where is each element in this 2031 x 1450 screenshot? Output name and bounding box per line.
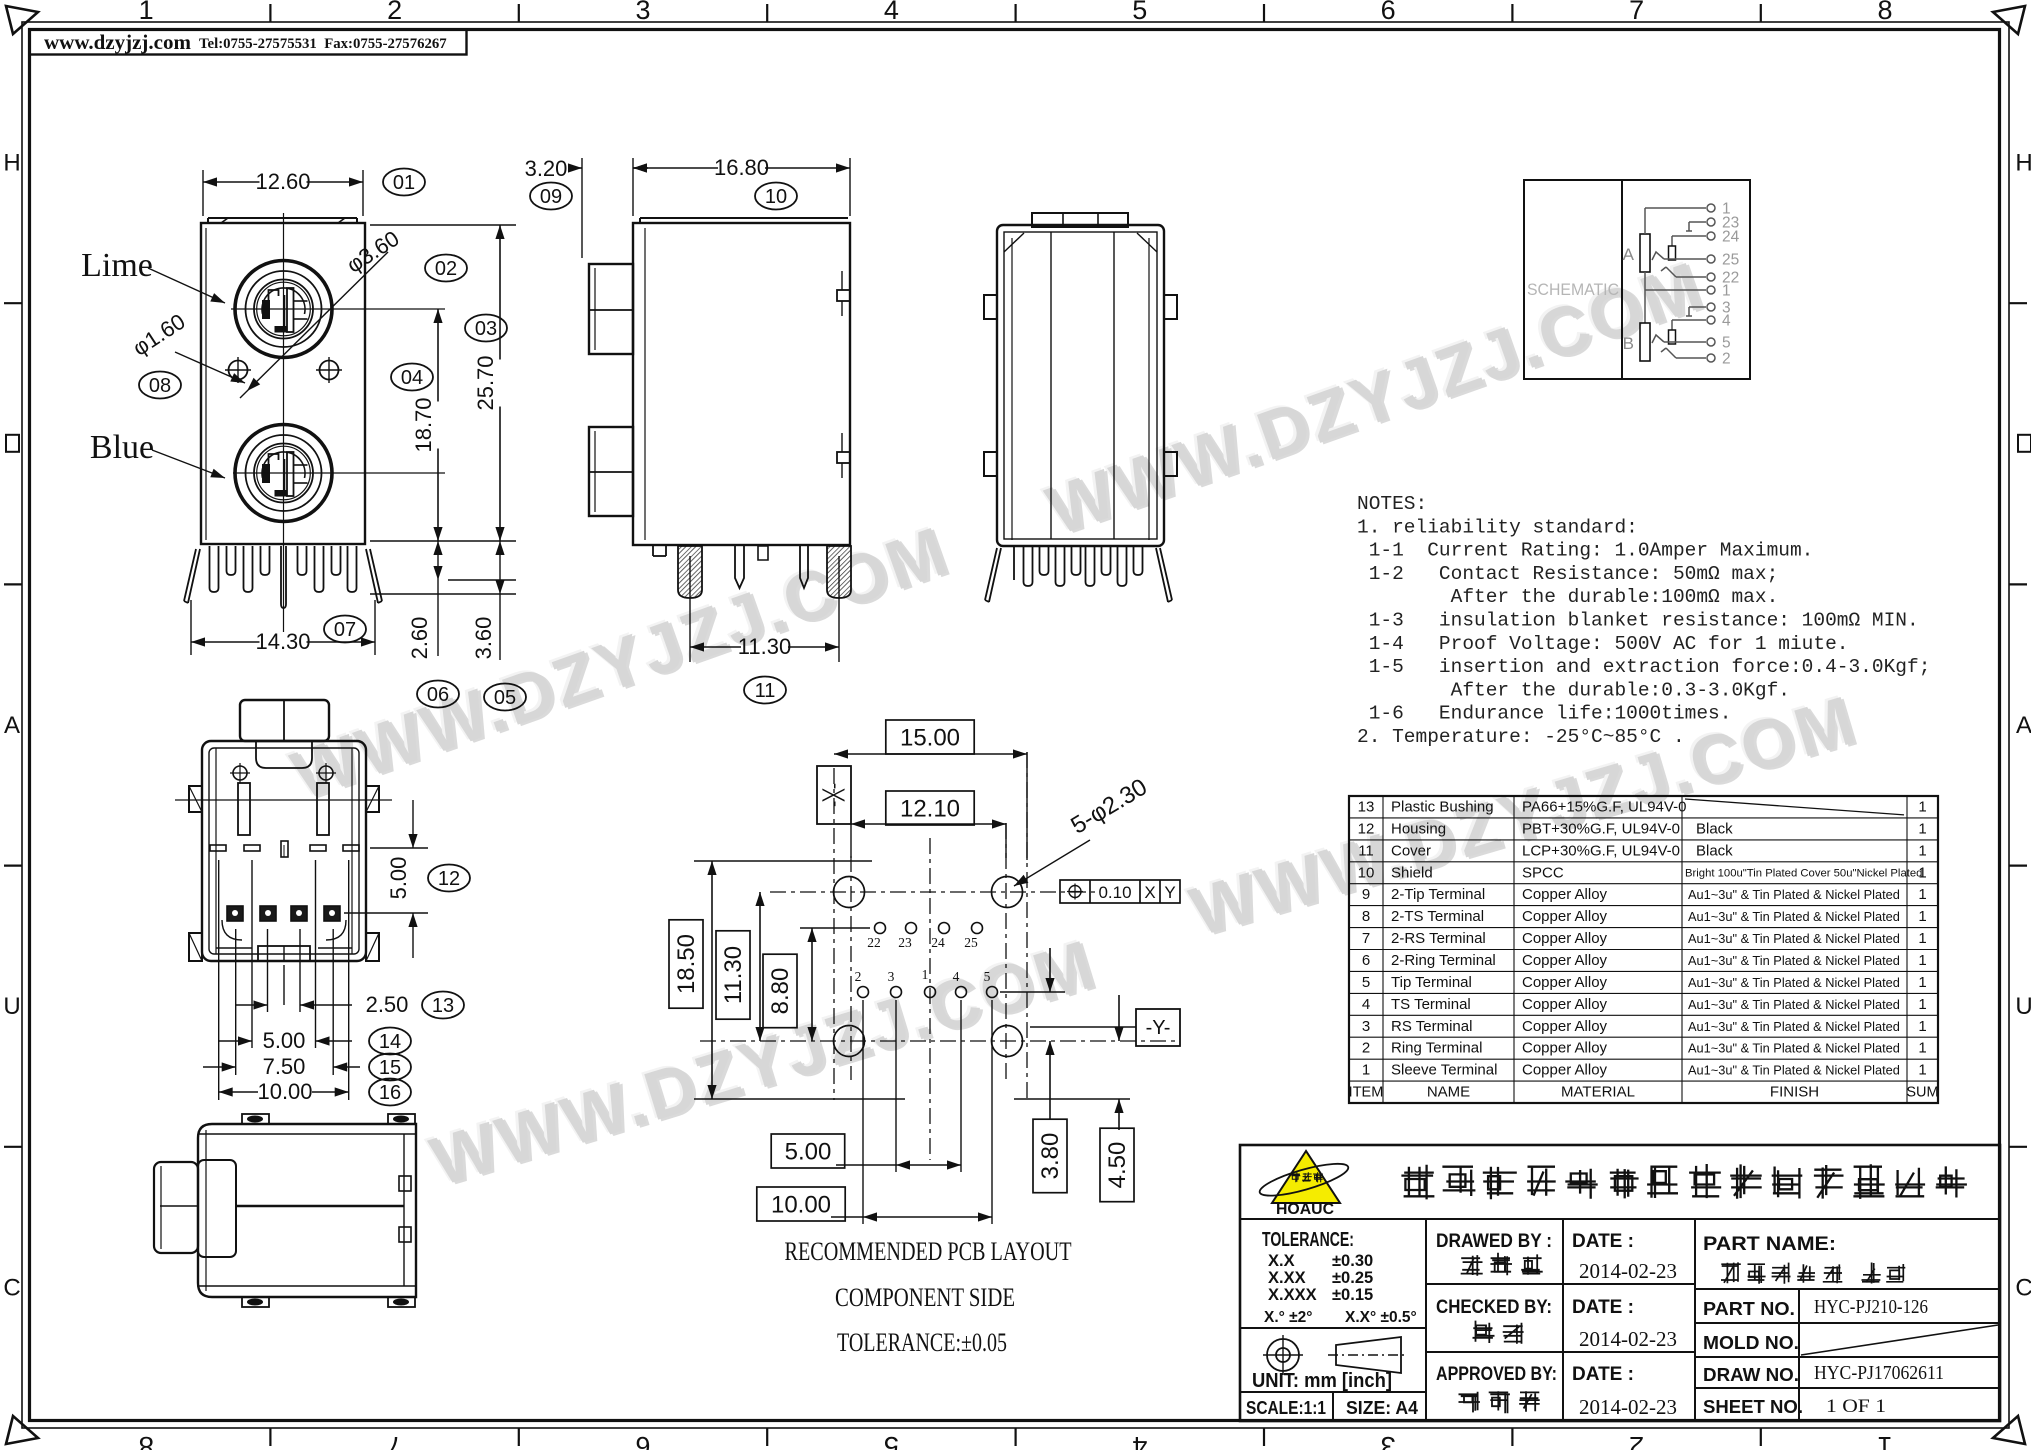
svg-text:Lime: Lime [81, 247, 153, 284]
svg-text:15: 15 [379, 1057, 401, 1079]
svg-text:25: 25 [964, 935, 978, 950]
svg-text:2-Ring Terminal: 2-Ring Terminal [1391, 952, 1496, 969]
svg-text:3: 3 [1381, 1431, 1396, 1450]
svg-text:5.00: 5.00 [263, 1028, 306, 1053]
svg-text:2: 2 [855, 969, 862, 984]
svg-text:Copper Alloy: Copper Alloy [1522, 952, 1608, 969]
svg-text:1-4 Proof Voltage: 500V AC f: 1-4 Proof Voltage: 500V AC for 1 miute. [1357, 633, 1848, 655]
svg-text:1 OF 1: 1 OF 1 [1826, 1396, 1886, 1417]
svg-text:5: 5 [1132, 0, 1147, 25]
svg-text:1: 1 [1918, 842, 1926, 859]
svg-text:2-RS Terminal: 2-RS Terminal [1391, 930, 1486, 947]
svg-text:1: 1 [1918, 799, 1926, 816]
svg-text:SCHEMATIC: SCHEMATIC [1527, 280, 1619, 299]
svg-text:C: C [2015, 1274, 2031, 1301]
svg-text:PA66+15%G.F, UL94V-0: PA66+15%G.F, UL94V-0 [1522, 799, 1686, 816]
svg-text:1: 1 [1722, 283, 1731, 300]
svg-text:12: 12 [1358, 820, 1375, 837]
svg-text:4: 4 [1362, 996, 1370, 1013]
svg-text:7: 7 [1629, 0, 1644, 25]
svg-text:10: 10 [765, 186, 787, 208]
svg-text:1: 1 [1918, 996, 1926, 1013]
svg-text:11: 11 [1358, 842, 1374, 859]
svg-text:DATE :: DATE : [1572, 1364, 1634, 1385]
svg-text:06: 06 [427, 684, 449, 706]
svg-text:1-6 Endurance life:1000times: 1-6 Endurance life:1000times. [1357, 703, 1731, 725]
svg-text:Housing: Housing [1391, 820, 1446, 837]
svg-text:3.60: 3.60 [471, 617, 496, 660]
svg-text:4: 4 [953, 969, 960, 984]
svg-text:Y: Y [1164, 883, 1175, 902]
svg-text:B: B [1623, 334, 1634, 353]
svg-text:Au1~3u" & Tin Plated & Nickel: Au1~3u" & Tin Plated & Nickel Plated [1688, 975, 1900, 990]
svg-text:C: C [3, 1274, 20, 1301]
svg-text:1: 1 [1918, 952, 1926, 969]
svg-text:1: 1 [139, 0, 154, 25]
svg-text:COMPONENT SIDE: COMPONENT SIDE [835, 1283, 1015, 1312]
svg-text:2-TS Terminal: 2-TS Terminal [1391, 908, 1484, 925]
svg-text:X.X° ±0.5°: X.X° ±0.5° [1345, 1309, 1417, 1326]
svg-text:SPCC: SPCC [1522, 864, 1564, 881]
svg-text:TOLERANCE:±0.05: TOLERANCE:±0.05 [837, 1328, 1007, 1357]
svg-text:X.XX: X.XX [1268, 1269, 1306, 1287]
svg-text:UNIT: mm [inch]: UNIT: mm [inch] [1252, 1370, 1392, 1392]
svg-text:4: 4 [884, 0, 899, 25]
svg-text:PART NAME:: PART NAME: [1703, 1234, 1836, 1255]
svg-text:5: 5 [1362, 974, 1370, 991]
svg-text:X.° ±2°: X.° ±2° [1264, 1309, 1312, 1326]
svg-text:1: 1 [922, 967, 929, 982]
svg-text:LCP+30%G.F, UL94V-0: LCP+30%G.F, UL94V-0 [1522, 842, 1680, 859]
svg-text:1: 1 [1918, 908, 1926, 925]
svg-text:14: 14 [379, 1031, 401, 1053]
svg-text:4: 4 [1132, 1431, 1147, 1450]
svg-text:2. Temperature: -25°C~85°C .: 2. Temperature: -25°C~85°C . [1357, 726, 1685, 748]
svg-text:14.30: 14.30 [255, 629, 310, 654]
svg-text:1: 1 [1362, 1062, 1370, 1079]
svg-text:22: 22 [867, 935, 881, 950]
svg-text:12.10: 12.10 [900, 795, 960, 822]
svg-text:Copper Alloy: Copper Alloy [1522, 1062, 1608, 1079]
svg-text:Blue: Blue [90, 429, 154, 466]
svg-text:SHEET NO.: SHEET NO. [1703, 1397, 1803, 1417]
svg-text:ITEM: ITEM [1349, 1085, 1384, 1101]
svg-text:Cover: Cover [1391, 842, 1431, 859]
svg-text:2014-02-23: 2014-02-23 [1579, 1327, 1677, 1351]
svg-text:2: 2 [1629, 1431, 1644, 1450]
svg-text:04: 04 [401, 367, 423, 389]
svg-text:2014-02-23: 2014-02-23 [1579, 1395, 1677, 1419]
svg-text:Copper Alloy: Copper Alloy [1522, 1018, 1608, 1035]
svg-text:4: 4 [1722, 313, 1731, 330]
svg-text:H: H [3, 150, 20, 177]
svg-text:A: A [1623, 245, 1635, 264]
svg-text:7.50: 7.50 [263, 1054, 306, 1079]
svg-text:MOLD NO.: MOLD NO. [1703, 1333, 1799, 1353]
svg-text:1: 1 [1918, 886, 1926, 903]
svg-text:-Y-: -Y- [1146, 1017, 1171, 1039]
svg-text:0.10: 0.10 [1098, 883, 1131, 902]
svg-text:Tel:0755-27575531 Fax:0755-27: Tel:0755-27575531 Fax:0755-27576267 [199, 36, 447, 52]
svg-text:±0.30: ±0.30 [1332, 1252, 1373, 1270]
svg-text:SCALE:1:1: SCALE:1:1 [1246, 1398, 1326, 1418]
svg-text:1: 1 [1918, 974, 1926, 991]
svg-text:18.50: 18.50 [673, 934, 700, 994]
svg-text:Au1~3u" & Tin Plated & Nickel: Au1~3u" & Tin Plated & Nickel Plated [1688, 1041, 1900, 1056]
svg-text:After the durable:0.3-3.0Kgf.: After the durable:0.3-3.0Kgf. [1357, 679, 1790, 701]
svg-text:11.30: 11.30 [738, 634, 791, 659]
svg-text:Sleeve Terminal: Sleeve Terminal [1391, 1062, 1497, 1079]
svg-text:1: 1 [1918, 1062, 1926, 1079]
svg-text:TS Terminal: TS Terminal [1391, 996, 1471, 1013]
svg-text:U: U [3, 993, 20, 1020]
svg-text:2.60: 2.60 [407, 617, 432, 660]
svg-text:25: 25 [1722, 252, 1739, 269]
svg-text:10.00: 10.00 [257, 1079, 312, 1104]
svg-text:16: 16 [379, 1082, 401, 1104]
svg-text:09: 09 [540, 186, 562, 208]
svg-text:DRAW NO.: DRAW NO. [1703, 1365, 1799, 1385]
svg-text:3.80: 3.80 [1037, 1133, 1064, 1180]
svg-text:FINISH: FINISH [1770, 1084, 1819, 1101]
svg-text:3: 3 [635, 0, 650, 25]
svg-text:DATE :: DATE : [1572, 1231, 1634, 1252]
svg-text:2: 2 [1722, 351, 1731, 368]
svg-text:Plastic Bushing: Plastic Bushing [1391, 799, 1494, 816]
svg-text:RS Terminal: RS Terminal [1391, 1018, 1472, 1035]
svg-text:2-Tip Terminal: 2-Tip Terminal [1391, 886, 1485, 903]
svg-text:Copper Alloy: Copper Alloy [1522, 1040, 1608, 1057]
svg-text:5: 5 [884, 1431, 899, 1450]
svg-text:5: 5 [984, 969, 991, 984]
svg-text:2014-02-23: 2014-02-23 [1579, 1259, 1677, 1283]
svg-text:1: 1 [1918, 820, 1926, 837]
svg-text:18.70: 18.70 [411, 397, 436, 452]
svg-text:X: X [1144, 883, 1155, 902]
svg-text:RECOMMENDED PCB LAYOUT: RECOMMENDED PCB LAYOUT [785, 1237, 1072, 1266]
svg-text:13: 13 [432, 995, 454, 1017]
svg-text:03: 03 [475, 318, 497, 340]
svg-text:24: 24 [1722, 229, 1740, 246]
svg-text:SIZE: A4: SIZE: A4 [1346, 1398, 1418, 1418]
svg-text:15.00: 15.00 [900, 724, 960, 751]
svg-text:6: 6 [1362, 952, 1370, 969]
svg-text:PART NO.: PART NO. [1703, 1299, 1795, 1319]
svg-text:Black: Black [1696, 820, 1733, 837]
svg-text:10: 10 [1358, 864, 1375, 881]
svg-text:07: 07 [334, 619, 356, 641]
svg-text:DRAWED BY :: DRAWED BY : [1436, 1231, 1552, 1252]
svg-text:HYC-PJ17062611: HYC-PJ17062611 [1814, 1362, 1944, 1384]
svg-text:±0.15: ±0.15 [1332, 1286, 1373, 1304]
svg-text:1: 1 [1877, 1431, 1892, 1450]
svg-text:Copper Alloy: Copper Alloy [1522, 930, 1608, 947]
svg-text:Bright 100u"Tin Plated Cover 5: Bright 100u"Tin Plated Cover 50u"Nickel … [1685, 867, 1922, 879]
svg-text:A: A [2016, 712, 2031, 739]
svg-text:13: 13 [1358, 799, 1375, 816]
svg-text:4.50: 4.50 [1104, 1142, 1131, 1189]
svg-text:1-5 insertion and extraction: 1-5 insertion and extraction force:0.4-3… [1357, 656, 1930, 678]
svg-text:1. reliability standard:: 1. reliability standard: [1357, 516, 1638, 538]
svg-text:NOTES:: NOTES: [1357, 493, 1427, 515]
svg-text:2: 2 [1362, 1040, 1370, 1057]
svg-text:Au1~3u" & Tin Plated & Nickel: Au1~3u" & Tin Plated & Nickel Plated [1688, 931, 1900, 946]
svg-text:12: 12 [438, 868, 460, 890]
svg-text:Shield: Shield [1391, 864, 1433, 881]
svg-text:Black: Black [1696, 842, 1733, 859]
svg-text:Au1~3u" & Tin Plated & Nickel: Au1~3u" & Tin Plated & Nickel Plated [1688, 953, 1900, 968]
svg-text:www.dzyjzj.com: www.dzyjzj.com [44, 30, 191, 54]
svg-text:1-3 insulation blanket resis: 1-3 insulation blanket resistance: 100mΩ… [1357, 610, 1919, 632]
svg-text:DATE :: DATE : [1572, 1297, 1634, 1318]
svg-text:Au1~3u" & Tin Plated & Nickel: Au1~3u" & Tin Plated & Nickel Plated [1688, 997, 1900, 1012]
svg-text:3.20: 3.20 [525, 156, 568, 181]
svg-text:7: 7 [1362, 930, 1370, 947]
svg-text:3: 3 [1362, 1018, 1370, 1035]
svg-text:5.00: 5.00 [386, 857, 411, 900]
svg-text:1-1 Current Rating: 1.0Amper: 1-1 Current Rating: 1.0Amper Maximum. [1357, 540, 1813, 562]
svg-text:X.XXX: X.XXX [1268, 1286, 1317, 1304]
svg-text:01: 01 [393, 172, 415, 194]
svg-text:8: 8 [1362, 908, 1370, 925]
svg-text:02: 02 [435, 258, 457, 280]
svg-text:Copper Alloy: Copper Alloy [1522, 908, 1608, 925]
svg-text:Ring Terminal: Ring Terminal [1391, 1040, 1482, 1057]
svg-text:Copper Alloy: Copper Alloy [1522, 974, 1608, 991]
svg-text:23: 23 [898, 935, 912, 950]
svg-text:3: 3 [888, 969, 895, 984]
svg-text:11.30: 11.30 [720, 946, 747, 1004]
svg-text:8.80: 8.80 [767, 968, 794, 1015]
svg-text:Au1~3u" & Tin Plated & Nickel: Au1~3u" & Tin Plated & Nickel Plated [1688, 887, 1900, 902]
svg-text:After the durable:100mΩ max.: After the durable:100mΩ max. [1357, 586, 1778, 608]
svg-text:05: 05 [494, 687, 516, 709]
svg-text:8: 8 [1877, 0, 1892, 25]
svg-text:11: 11 [755, 680, 776, 702]
svg-text:CHECKED BY:: CHECKED BY: [1436, 1297, 1552, 1318]
svg-text:HYC-PJ210-126: HYC-PJ210-126 [1814, 1296, 1928, 1318]
svg-text:1: 1 [1918, 1018, 1926, 1035]
svg-text:TOLERANCE:: TOLERANCE: [1262, 1229, 1354, 1251]
svg-text:5.00: 5.00 [785, 1138, 832, 1165]
svg-text:25.70: 25.70 [473, 355, 498, 410]
svg-text:MATERIAL: MATERIAL [1561, 1084, 1635, 1101]
svg-text:16.80: 16.80 [714, 155, 769, 180]
svg-text:6: 6 [635, 1431, 650, 1450]
svg-text:1-2 Contact Resistance: 50mΩ: 1-2 Contact Resistance: 50mΩ max; [1357, 563, 1778, 585]
svg-text:2: 2 [387, 0, 402, 25]
svg-text:6: 6 [1381, 0, 1396, 25]
svg-text:1: 1 [1918, 1040, 1926, 1057]
svg-text:NAME: NAME [1427, 1084, 1470, 1101]
svg-text:Au1~3u" & Tin Plated & Nickel: Au1~3u" & Tin Plated & Nickel Plated [1688, 1019, 1900, 1034]
svg-text:X.X: X.X [1268, 1252, 1295, 1270]
svg-text:7: 7 [387, 1431, 402, 1450]
svg-text:±0.25: ±0.25 [1332, 1269, 1373, 1287]
svg-text:SUM: SUM [1906, 1085, 1938, 1101]
svg-text:10.00: 10.00 [771, 1191, 831, 1218]
svg-text:-╳-: -╳- [822, 783, 845, 807]
svg-text:U: U [2015, 993, 2031, 1020]
svg-text:9: 9 [1362, 886, 1370, 903]
svg-text:1: 1 [1918, 930, 1926, 947]
svg-text:H: H [2015, 150, 2031, 177]
svg-text:2.50: 2.50 [366, 992, 409, 1017]
svg-text:APPROVED BY:: APPROVED BY: [1436, 1364, 1557, 1385]
svg-text:08: 08 [149, 375, 171, 397]
svg-text:Au1~3u" & Tin Plated & Nickel: Au1~3u" & Tin Plated & Nickel Plated [1688, 909, 1900, 924]
svg-text:5: 5 [1722, 335, 1731, 352]
svg-text:A: A [4, 712, 20, 739]
svg-text:8: 8 [139, 1431, 154, 1450]
svg-text:Copper Alloy: Copper Alloy [1522, 996, 1608, 1013]
svg-text:Tip Terminal: Tip Terminal [1391, 974, 1472, 991]
svg-text:Copper Alloy: Copper Alloy [1522, 886, 1608, 903]
svg-text:24: 24 [931, 935, 945, 950]
svg-text:PBT+30%G.F, UL94V-0: PBT+30%G.F, UL94V-0 [1522, 820, 1680, 837]
svg-text:Au1~3u" & Tin Plated & Nickel: Au1~3u" & Tin Plated & Nickel Plated [1688, 1063, 1900, 1078]
svg-text:12.60: 12.60 [255, 169, 310, 194]
